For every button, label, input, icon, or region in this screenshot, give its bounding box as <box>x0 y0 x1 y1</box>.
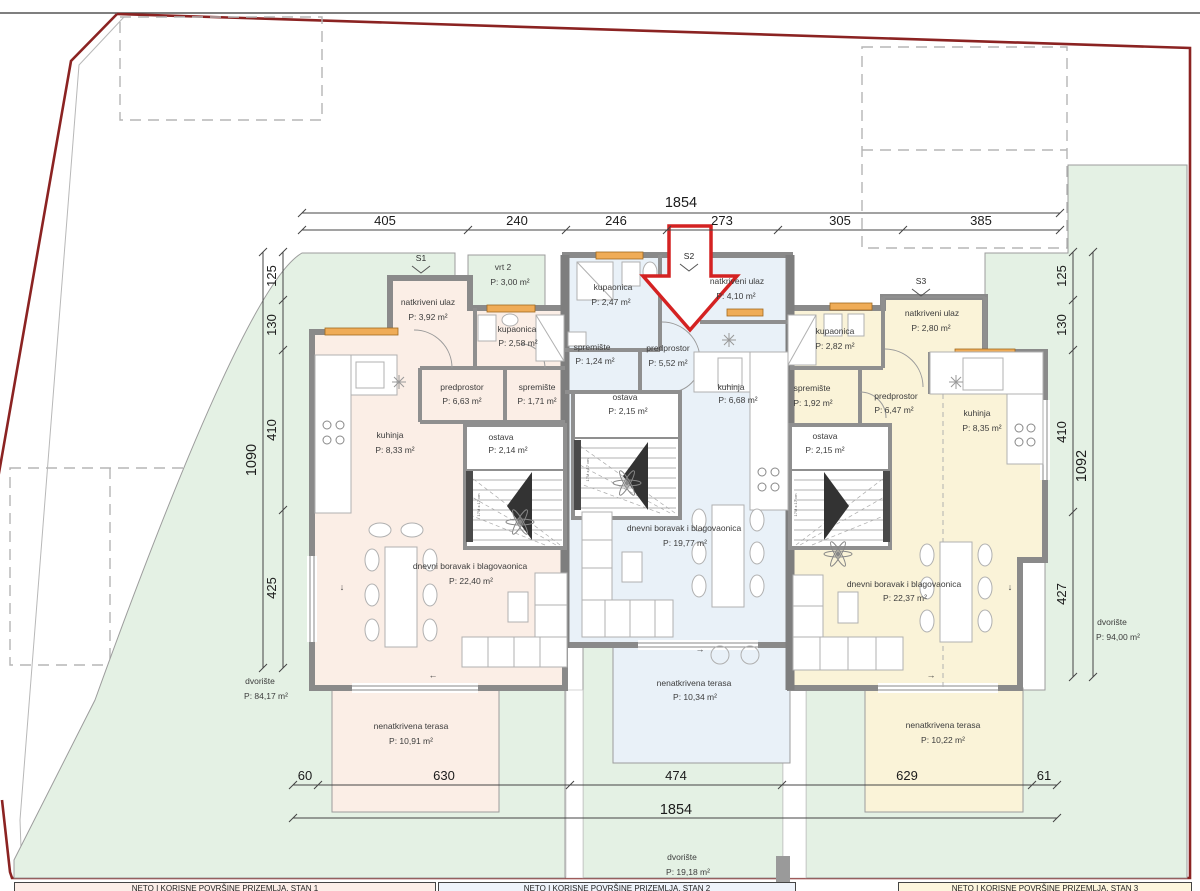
label-s2-dnevni-area: P: 19,77 m² <box>663 538 707 548</box>
dim-bottom-4: 629 <box>896 768 918 783</box>
terrace1 <box>332 688 499 812</box>
label-s1-dnevni-name: dnevni boravak i blagovaonica <box>413 561 528 571</box>
label-s3-ostava-area: P: 2,15 m² <box>805 445 844 455</box>
label-s3-kuhinja-name: kuhinja <box>964 408 991 418</box>
dim-left-2: 130 <box>264 314 279 336</box>
dim-right-4: 427 <box>1054 583 1069 605</box>
footer-table-stan3: NETO I KORISNE POVRŠINE PRIZEMLJA, STAN … <box>898 882 1192 891</box>
label-s2-kupaonica-area: P: 2,47 m² <box>591 297 630 307</box>
dim-right-total: 1092 <box>1074 450 1090 482</box>
floor-plan-drawing: S1 S2 S3 1854 405 240 246 273 305 385 60… <box>0 0 1200 891</box>
dim-right-2: 130 <box>1054 314 1069 336</box>
dim-top-2: 240 <box>506 213 528 228</box>
label-dvoriste-left-name: dvorište <box>245 676 275 686</box>
dim-bottom-2: 630 <box>433 768 455 783</box>
dim-top-1: 405 <box>374 213 396 228</box>
terrace2 <box>613 645 790 763</box>
neighbor-building-top-right <box>862 47 1067 248</box>
label-dvoriste-bottom-name: dvorište <box>667 852 697 862</box>
label-s1-spremiste-name: spremište <box>519 382 556 392</box>
window-icon <box>325 328 398 335</box>
label-s1-vrt-name: vrt 2 <box>495 262 512 272</box>
label-dvoriste-bottom-area: P: 19,18 m² <box>666 867 710 877</box>
plan-canvas: S1 S2 S3 1854 405 240 246 273 305 385 60… <box>0 0 1200 891</box>
label-s1-kupaonica-name: kupaonica <box>498 324 537 334</box>
stairs-note-3: 17M x 17 cm <box>793 493 798 517</box>
label-s3-predprostor-name: predprostor <box>874 391 918 401</box>
label-s3-ostava-name: ostava <box>812 431 837 441</box>
label-dvoriste-right-area: P: 94,00 m² <box>1096 632 1140 642</box>
label-s1-ostava-area: P: 2,14 m² <box>488 445 527 455</box>
door-direction-arrow: ← <box>429 670 438 680</box>
light-icon <box>722 333 736 347</box>
door-direction-arrow: ↓ <box>340 582 345 592</box>
label-s1-spremiste-area: P: 1,71 m² <box>517 396 556 406</box>
dim-top-total: 1854 <box>665 195 697 211</box>
label-s1-ulaz-area: P: 3,92 m² <box>408 312 447 322</box>
lot-gap-left <box>566 690 583 878</box>
label-s1-terasa-name: nenatkrivena terasa <box>374 721 449 731</box>
label-s2-kuhinja-name: kuhinja <box>718 382 745 392</box>
label-s1-ostava-name: ostava <box>488 432 513 442</box>
label-s3-spremiste-area: P: 1,92 m² <box>793 398 832 408</box>
label-s3-dnevni-name: dnevni boravak i blagovaonica <box>847 579 962 589</box>
stairs-note-2: 17M x 17 cm <box>585 458 590 482</box>
label-s3-terasa-area: P: 10,22 m² <box>921 735 965 745</box>
neighbor-building-top-left <box>120 17 322 120</box>
staircase-unit1 <box>465 425 565 548</box>
label-s2-ulaz-area: P: 4,10 m² <box>716 291 755 301</box>
label-s3-predprostor-area: P: 6,47 m² <box>874 405 913 415</box>
label-s2-kupaonica-name: kupaonica <box>594 282 633 292</box>
label-s1-kupaonica-area: P: 2,58 m² <box>498 338 537 348</box>
label-dvoriste-left-area: P: 84,17 m² <box>244 691 288 701</box>
label-s2-terasa-name: nenatkrivena terasa <box>657 678 732 688</box>
label-s2-kuhinja-area: P: 6,68 m² <box>718 395 757 405</box>
marker-s2: S2 <box>684 251 695 261</box>
label-s1-terasa-area: P: 10,91 m² <box>389 736 433 746</box>
label-s2-dnevni-name: dnevni boravak i blagovaonica <box>627 523 742 533</box>
light-icon <box>949 375 963 389</box>
label-s1-kuhinja-name: kuhinja <box>377 430 404 440</box>
dim-bottom-total: 1854 <box>660 802 692 818</box>
label-s3-dnevni-area: P: 22,37 m² <box>883 593 927 603</box>
staircase-unit3 <box>790 425 890 548</box>
dim-top-3: 246 <box>605 213 627 228</box>
dim-right-3: 410 <box>1054 421 1069 443</box>
dim-top-6: 385 <box>970 213 992 228</box>
marker-s3: S3 <box>916 276 927 286</box>
label-s3-spremiste-name: spremište <box>794 383 831 393</box>
label-s1-dnevni-area: P: 22,40 m² <box>449 576 493 586</box>
label-s2-ostava-area: P: 2,15 m² <box>608 406 647 416</box>
label-s2-ulaz-name: natkriveni ulaz <box>710 276 764 286</box>
label-s3-kupaonica-name: kupaonica <box>816 326 855 336</box>
dim-left-3: 410 <box>264 419 279 441</box>
label-s3-kupaonica-area: P: 2,82 m² <box>815 341 854 351</box>
dim-left-1: 125 <box>264 265 279 287</box>
label-s3-kuhinja-area: P: 8,35 m² <box>962 423 1001 433</box>
label-s3-terasa-name: nenatkrivena terasa <box>906 720 981 730</box>
label-s2-predprostor-name: predprostor <box>646 343 690 353</box>
door-direction-arrow: → <box>927 670 936 680</box>
dim-bottom-1: 60 <box>298 768 312 783</box>
window-icon <box>596 252 643 259</box>
dining-table-3 <box>920 542 992 642</box>
label-s2-predprostor-area: P: 5,52 m² <box>648 358 687 368</box>
label-s1-vrt-area: P: 3,00 m² <box>490 277 529 287</box>
label-s2-spremiste-name: spremište <box>574 342 611 352</box>
label-s2-ostava-name: ostava <box>612 392 637 402</box>
stairs-note-1: 17M x 17 cm <box>476 493 481 517</box>
label-s1-predprostor-area: P: 6,63 m² <box>442 396 481 406</box>
window-icon <box>487 305 535 312</box>
dim-bottom-5: 61 <box>1037 768 1051 783</box>
light-icon <box>392 375 406 389</box>
door-direction-arrow: ↓ <box>1008 582 1013 592</box>
footer-table-stan1: NETO I KORISNE POVRŠINE PRIZEMLJA, STAN … <box>14 882 436 891</box>
label-s2-spremiste-area: P: 1,24 m² <box>575 356 614 366</box>
dim-bottom-3: 474 <box>665 768 687 783</box>
label-s1-predprostor-name: predprostor <box>440 382 484 392</box>
label-dvoriste-right-name: dvorište <box>1097 617 1127 627</box>
window-icon <box>727 309 763 316</box>
label-s1-kuhinja-area: P: 8,33 m² <box>375 445 414 455</box>
dim-top-4: 273 <box>711 213 733 228</box>
dim-left-4: 425 <box>264 577 279 599</box>
label-s1-ulaz-name: natkriveni ulaz <box>401 297 455 307</box>
window-icon <box>830 303 872 310</box>
label-s3-ulaz-name: natkriveni ulaz <box>905 308 959 318</box>
dim-right-1: 125 <box>1054 265 1069 287</box>
dining-table-2 <box>692 505 764 607</box>
terrace3 <box>865 688 1023 812</box>
footer-table-stan2: NETO I KORISNE POVRŠINE PRIZEMLJA, STAN … <box>438 882 796 891</box>
dim-top-5: 305 <box>829 213 851 228</box>
dim-left-total: 1090 <box>244 444 260 476</box>
door-direction-arrow: → <box>696 644 705 654</box>
label-s3-ulaz-area: P: 2,80 m² <box>911 323 950 333</box>
marker-s1: S1 <box>416 253 427 263</box>
label-s2-terasa-area: P: 10,34 m² <box>673 692 717 702</box>
